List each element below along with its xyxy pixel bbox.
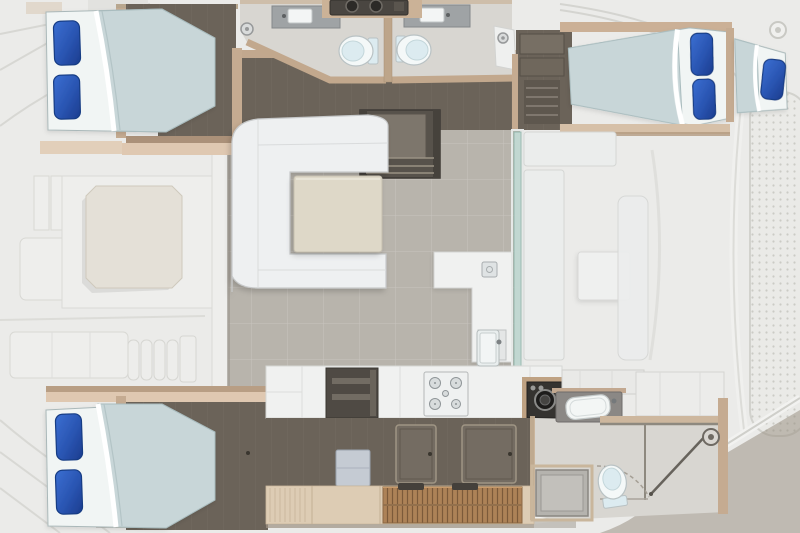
cabin-ul-aft-wall xyxy=(126,136,238,143)
cabin-ur-step-2 xyxy=(520,58,564,76)
salon-left-wall-line xyxy=(227,130,230,392)
toilet-right xyxy=(396,35,431,65)
windlass-drum-1 xyxy=(346,0,358,12)
bed-lower-left xyxy=(46,404,215,528)
appliance-frame-top xyxy=(522,377,568,382)
galley-faucet xyxy=(497,340,502,345)
pillow xyxy=(53,21,81,66)
side-deck-strip xyxy=(212,128,228,392)
cabin-ul-walkway-ext xyxy=(40,141,122,154)
shower-pan xyxy=(532,466,592,520)
pillow xyxy=(690,33,713,75)
cabin-ur-beds-divider xyxy=(726,28,734,122)
head-lower-right xyxy=(530,370,728,520)
teak-steps xyxy=(383,483,522,523)
galley-sink xyxy=(477,330,502,366)
toilet-left xyxy=(339,36,378,66)
cabin-ur-divider xyxy=(512,54,518,130)
toilet-left-seat xyxy=(342,41,364,61)
stove xyxy=(424,372,468,416)
galley-counter-band xyxy=(266,366,562,418)
bed-upper-left xyxy=(46,9,215,132)
floorplan-stage xyxy=(0,0,800,533)
cabin-ur-vent xyxy=(524,80,560,124)
faucet-right xyxy=(446,13,450,17)
cabin-ll-fore-wall-line xyxy=(46,386,268,392)
sink-left xyxy=(288,9,312,23)
sunpad xyxy=(86,186,182,288)
deck-louvers xyxy=(128,336,196,382)
pillow xyxy=(760,59,786,101)
galley-shelves xyxy=(326,368,378,418)
trampoline-mesh xyxy=(750,92,800,436)
pillow xyxy=(692,79,715,120)
head-right-wall xyxy=(392,78,516,80)
cockpit-bench-outer xyxy=(618,196,648,360)
deck-fitting-center xyxy=(775,27,781,33)
head-lr-cabinet xyxy=(636,372,724,416)
cockpit-bench-side xyxy=(524,170,564,360)
floor-hatch-2 xyxy=(462,425,516,483)
salon-table xyxy=(294,176,382,252)
shower-head-center xyxy=(708,434,714,440)
faucet-left xyxy=(282,14,286,18)
pillow xyxy=(55,470,83,515)
floorplan-canvas xyxy=(0,0,800,533)
cabin-ul-walkway xyxy=(122,143,238,155)
side-steps xyxy=(10,332,128,378)
galley-stool xyxy=(336,450,370,486)
drain-center-left xyxy=(245,27,249,31)
counter-sink xyxy=(482,262,497,277)
pillow xyxy=(53,75,80,120)
cabin-ur-step-1 xyxy=(520,34,564,54)
toilet-right-seat xyxy=(406,40,428,60)
pillow xyxy=(55,414,83,461)
floor-latch xyxy=(246,451,250,455)
walkway-shadow xyxy=(266,524,534,528)
cabin-ll-walkway xyxy=(46,392,268,402)
windlass-gear xyxy=(394,2,404,11)
windlass-drum-2 xyxy=(370,0,382,12)
appliance-frame-left xyxy=(522,377,527,422)
drain-center-right xyxy=(501,36,505,40)
floor-hatch-1 xyxy=(396,425,436,483)
head-lr-right-wall xyxy=(718,398,728,514)
sink-right xyxy=(420,8,444,22)
cockpit-bench-forward xyxy=(524,132,616,166)
sliding-glass-door xyxy=(514,132,521,392)
basin-faucet xyxy=(612,399,617,404)
